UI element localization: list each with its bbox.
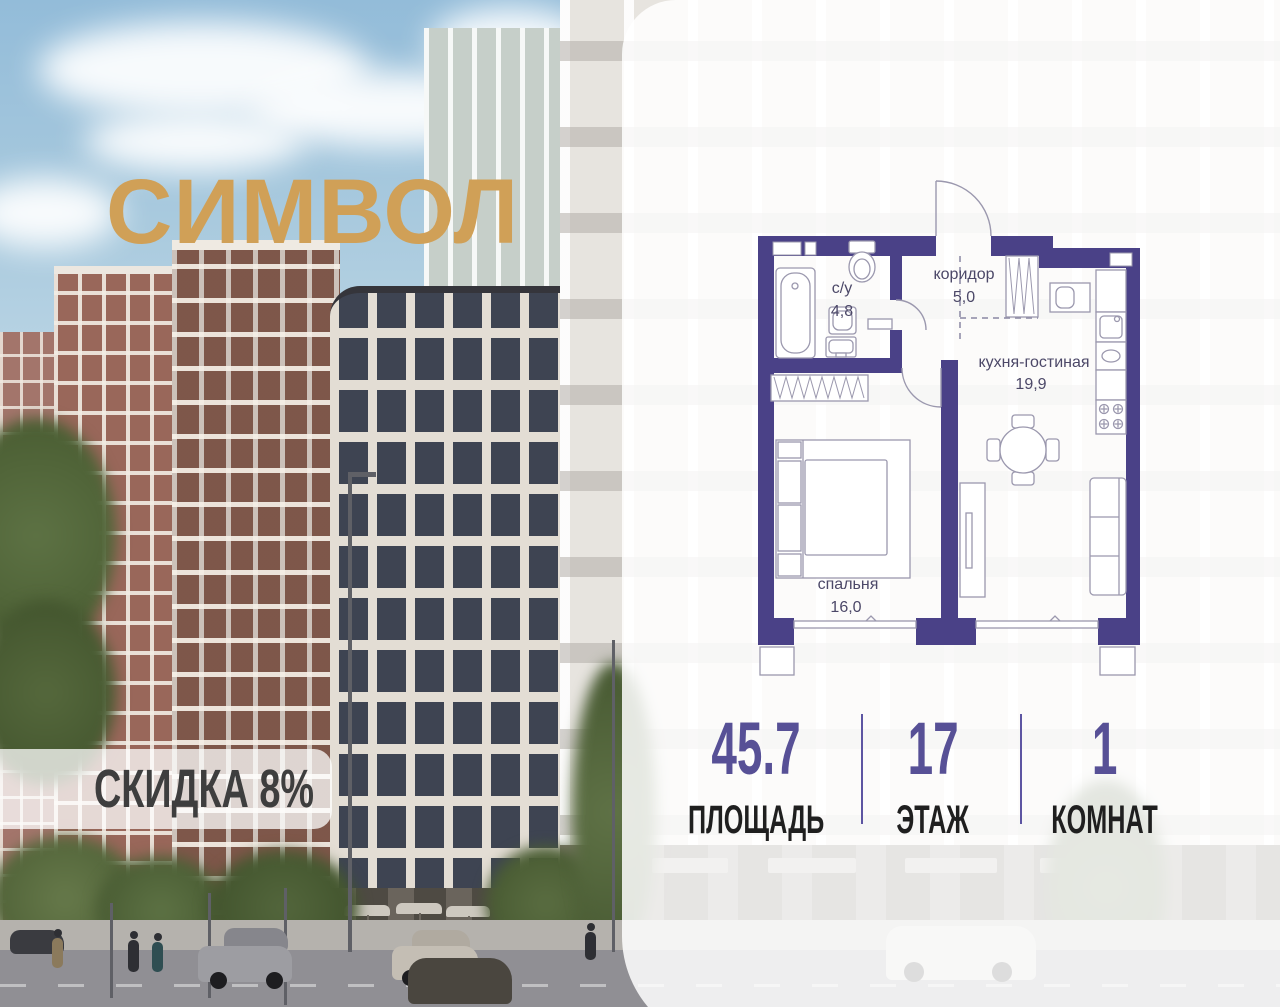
room-label-bathroom: с/у — [832, 280, 852, 297]
kitchen-counter-icon — [1096, 270, 1126, 400]
room-area-bedroom: 16,0 — [830, 599, 861, 616]
discount-badge-label: СКИДКА 8% — [94, 758, 314, 820]
street-lamp — [110, 903, 113, 998]
street-lamp-arm — [348, 472, 376, 477]
entry-door-arc — [936, 181, 991, 236]
brand-logo-text: СИМВОЛ — [106, 160, 519, 265]
street-lamp — [612, 640, 615, 952]
stat-rooms: 1 КОМНАТ — [1025, 712, 1185, 840]
car-dark-coupe — [408, 958, 512, 1004]
stove-icon — [1096, 400, 1126, 434]
pedestrian — [585, 932, 596, 960]
street-lamp — [348, 474, 352, 952]
pedestrian — [52, 938, 63, 968]
stat-rooms-value: 1 — [1084, 712, 1125, 786]
stat-area-value: 45.7 — [684, 712, 828, 786]
tv-stand-icon — [960, 483, 985, 597]
dining-table-icon — [987, 415, 1059, 485]
room-area-bathroom: 4,8 — [831, 303, 853, 320]
bed-icon — [776, 440, 910, 578]
window-left — [794, 616, 916, 628]
room-area-kitchen-living: 19,9 — [1015, 376, 1046, 393]
balcony-column-left — [760, 647, 794, 675]
balcony-column-right — [1100, 647, 1135, 675]
room-label-corridor: коридор — [933, 266, 994, 283]
sofa-icon — [1090, 478, 1126, 595]
bedroom-door-arc — [902, 368, 941, 407]
floor-plan: с/у 4,8 коридор 5,0 кухня-гостиная 19,9 … — [738, 172, 1150, 684]
room-label-kitchen-living: кухня-гостиная — [978, 354, 1089, 371]
window-right — [976, 616, 1098, 628]
pedestrian — [152, 942, 163, 972]
cafe-umbrella — [446, 906, 490, 917]
cloud — [0, 178, 120, 248]
cafe-umbrella — [396, 903, 442, 914]
discount-badge: СКИДКА 8% — [0, 749, 332, 829]
car-wheel — [210, 972, 227, 989]
corridor-wardrobe-icon — [1006, 256, 1038, 317]
stat-area-label: ПЛОЩАДЬ — [648, 800, 864, 840]
pedestrian — [128, 940, 139, 972]
car-wheel — [266, 972, 283, 989]
promo-card: СИМВОЛ СКИДКА 8% — [0, 0, 1280, 1007]
bathroom-sink-icon — [826, 337, 856, 357]
stat-floor-label: ЭТАЖ — [875, 800, 990, 840]
stat-floor-value: 17 — [892, 712, 974, 786]
kitchen-cabinet-icon — [1050, 283, 1090, 312]
bathtub-icon — [776, 268, 815, 358]
stat-floor: 17 ЭТАЖ — [853, 712, 1013, 840]
room-area-corridor: 5,0 — [953, 289, 975, 306]
stat-area: 45.7 ПЛОЩАДЬ — [660, 712, 852, 840]
bedroom-wardrobe-icon — [771, 375, 868, 401]
bathroom-door-arc — [868, 300, 926, 330]
stat-rooms-label: КОМНАТ — [1020, 800, 1189, 840]
room-label-bedroom: спальня — [818, 576, 879, 593]
toilet-icon — [849, 241, 875, 282]
